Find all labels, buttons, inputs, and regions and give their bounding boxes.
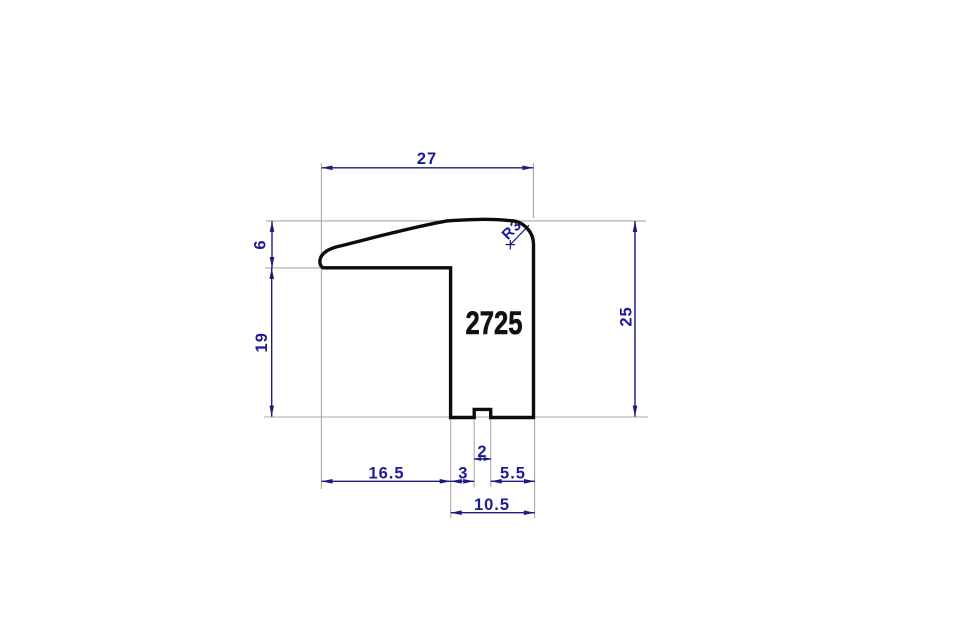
- svg-text:5.5: 5.5: [500, 465, 526, 483]
- svg-text:2: 2: [477, 443, 487, 461]
- svg-text:16.5: 16.5: [368, 465, 404, 483]
- svg-text:25: 25: [617, 306, 635, 326]
- svg-text:19: 19: [253, 332, 271, 352]
- svg-text:3: 3: [458, 465, 468, 483]
- svg-text:2725: 2725: [465, 305, 522, 342]
- svg-text:6: 6: [252, 239, 270, 249]
- svg-text:10.5: 10.5: [474, 496, 510, 514]
- svg-text:27: 27: [417, 150, 437, 168]
